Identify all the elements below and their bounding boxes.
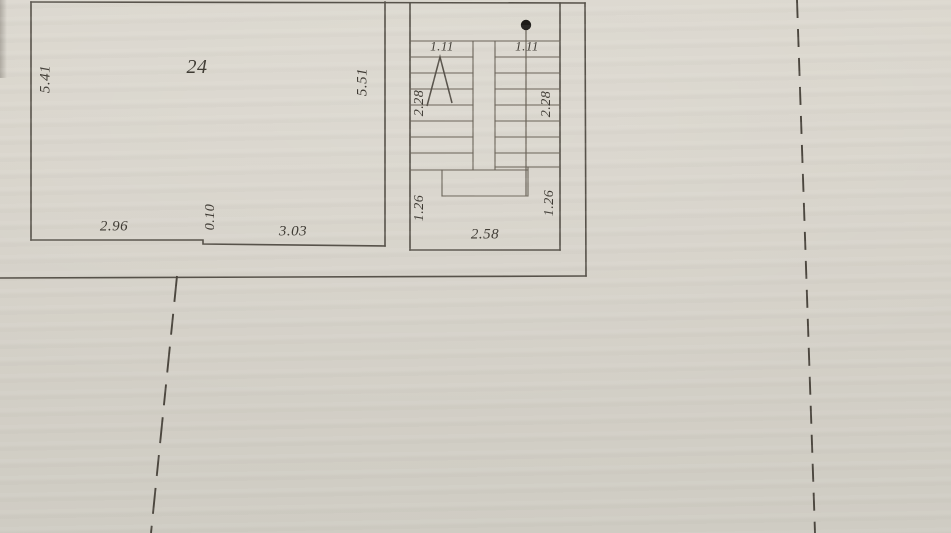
survey-point-dot	[521, 20, 531, 30]
room-left-height-label: 5.41	[39, 65, 54, 93]
wall-offset-label: 0.10	[204, 204, 218, 231]
stair-landing	[442, 167, 528, 196]
floor-plan-drawing	[0, 0, 951, 533]
flight-run-right-label: 2.28	[540, 91, 554, 118]
left-dashed-boundary-line	[151, 276, 177, 533]
stairwell-width-label: 2.58	[471, 228, 499, 243]
landing-depth-right-label: 1.26	[543, 190, 557, 217]
landing-depth-left-label: 1.26	[413, 195, 427, 222]
flight-width-left-label: 1.11	[430, 40, 454, 53]
building-back-wall	[31, 2, 585, 3]
room-bottom-width-left-label: 2.96	[100, 220, 128, 235]
room-number-label: 24	[187, 57, 208, 77]
right-dashed-boundary-line	[797, 0, 815, 533]
room-bottom-width-right-label: 3.03	[279, 225, 307, 240]
room-right-height-label: 5.51	[356, 68, 371, 96]
stair-direction-arrow	[427, 57, 452, 106]
flight-width-right-label: 1.11	[515, 40, 539, 53]
scanned-floor-plan-page: 245.415.512.960.103.031.111.112.282.281.…	[0, 0, 951, 533]
flight-run-left-label: 2.28	[413, 90, 427, 117]
